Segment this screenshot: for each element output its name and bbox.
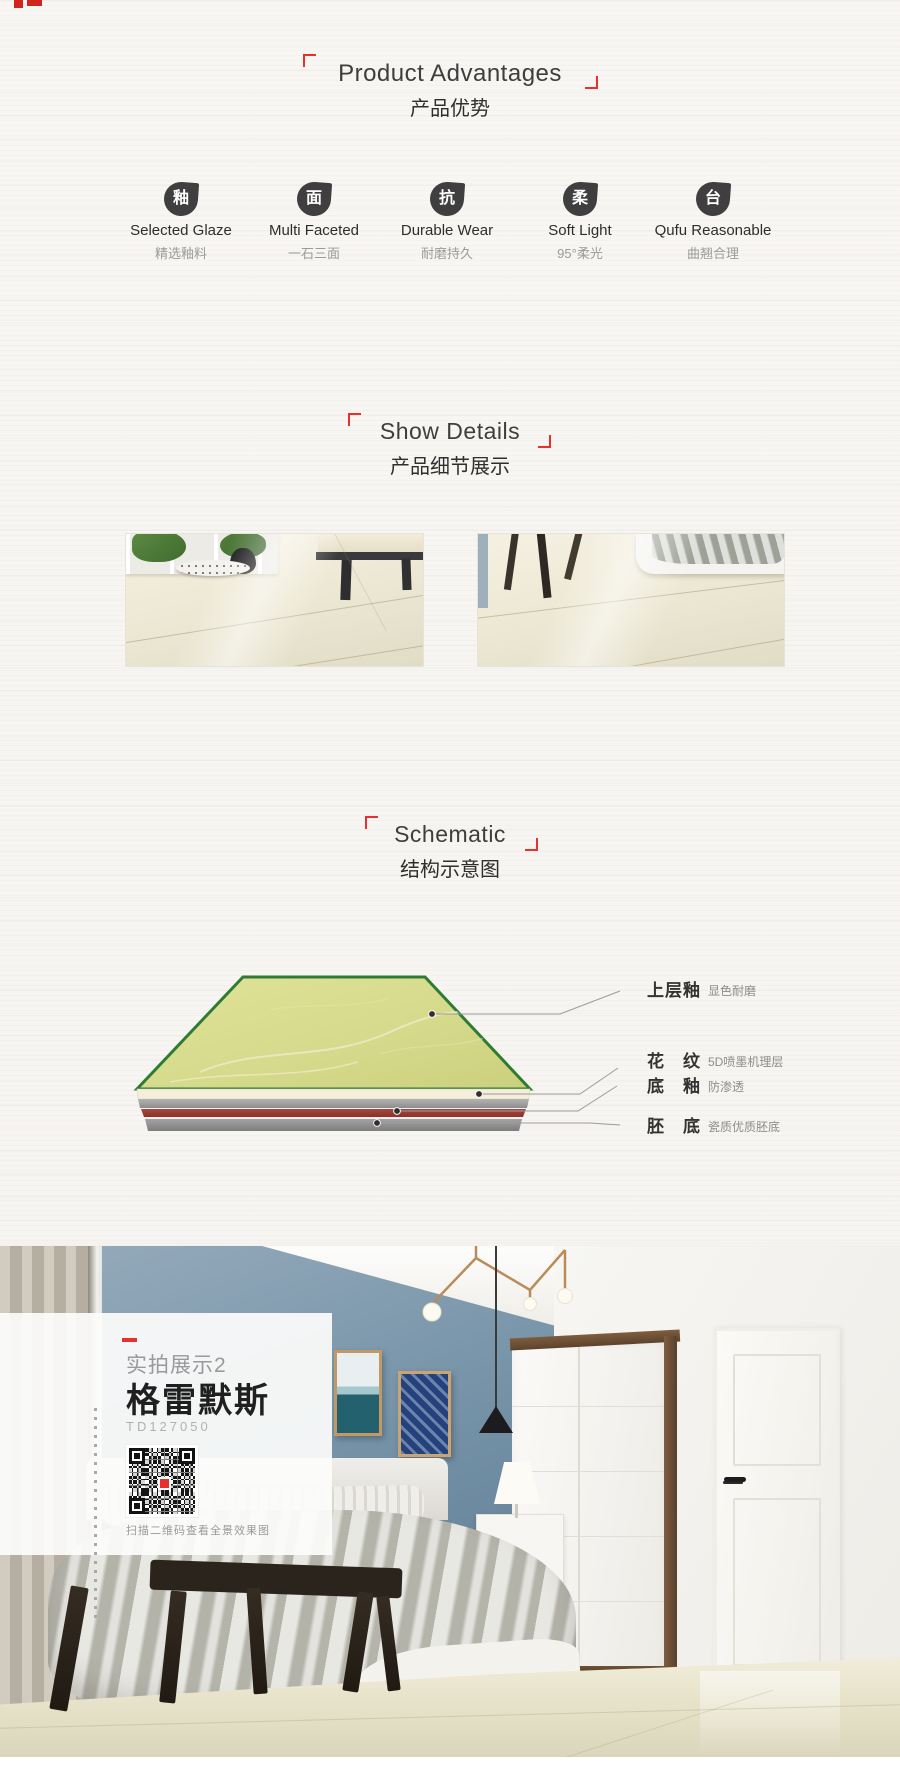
painting-abstract xyxy=(398,1371,451,1457)
gray-layer xyxy=(138,1099,529,1108)
advantage-label: Multi Faceted xyxy=(239,222,389,239)
layer-name: 上层釉 xyxy=(647,980,701,1000)
logo-fragment xyxy=(14,0,23,8)
advantage-label: Soft Light xyxy=(505,222,655,239)
layer-name: 花 纹 xyxy=(647,1051,701,1071)
flat-drop-icon: 台 xyxy=(695,181,731,217)
tile-structure-diagram: 上层釉 显色耐磨 花 纹 5D喷墨机理层 底 釉 防渗透 胚 底 瓷质优质胚底 xyxy=(90,950,800,1160)
advantage-label: Selected Glaze xyxy=(106,222,256,239)
body-edge-layer xyxy=(137,1089,530,1099)
section-title-advantages: Product Advantages xyxy=(0,60,900,88)
product-name: 格雷默斯 xyxy=(126,1373,270,1422)
door-handle xyxy=(724,1477,746,1482)
tile-top-surface xyxy=(137,977,530,1089)
detail-photo-floor-shelf xyxy=(125,533,424,667)
advantage-label: Qufu Reasonable xyxy=(638,222,788,239)
section-subtitle-advantages: 产品优势 xyxy=(0,92,900,121)
floor-reflection xyxy=(700,1671,840,1757)
layer-desc: 显色耐磨 xyxy=(708,984,756,998)
advantage-item: 柔 Soft Light 95°柔光 xyxy=(505,182,655,262)
pendant-cord xyxy=(495,1246,497,1408)
layer-name: 胚 底 xyxy=(647,1116,701,1136)
painting-iceberg xyxy=(334,1350,382,1436)
layer-name: 底 釉 xyxy=(647,1076,701,1096)
qr-finder-icon xyxy=(179,1448,195,1464)
footer-strip xyxy=(0,1757,900,1791)
chandelier xyxy=(380,1246,640,1356)
glaze-drop-icon: 釉 xyxy=(163,181,199,217)
advantage-item: 台 Qufu Reasonable 曲翘合理 xyxy=(638,182,788,262)
advantage-item: 面 Multi Faceted 一石三面 xyxy=(239,182,389,262)
soft-drop-icon: 柔 xyxy=(562,181,598,217)
floor-sheen xyxy=(478,534,784,666)
advantage-sublabel: 精选釉料 xyxy=(106,243,256,262)
layer-desc: 防渗透 xyxy=(708,1079,744,1094)
logo-fragment xyxy=(27,0,42,6)
qr-finder-icon xyxy=(129,1448,145,1464)
product-model: TD127050 xyxy=(126,1419,211,1434)
wardrobe-side-trim xyxy=(664,1336,677,1674)
section-title-details: Show Details xyxy=(0,418,900,445)
layer-desc: 瓷质优质胚底 xyxy=(708,1119,780,1134)
advantage-label: Durable Wear xyxy=(372,222,522,239)
base-layer xyxy=(145,1119,522,1131)
bedroom-showcase-photo: 实拍展示2 格雷默斯 TD127050 扫描二维码查看全景效果图 xyxy=(0,1246,900,1757)
wardrobe-line xyxy=(512,1406,666,1407)
advantage-sublabel: 曲翘合理 xyxy=(638,243,788,262)
qr-caption: 扫描二维码查看全景效果图 xyxy=(126,1522,270,1538)
wardrobe-divider xyxy=(578,1346,580,1670)
qr-finder-icon xyxy=(129,1498,145,1514)
detail-photo-floor-bed xyxy=(477,533,785,667)
product-detail-page: Product Advantages 产品优势 釉 Selected Glaze… xyxy=(0,0,900,1791)
facet-drop-icon: 面 xyxy=(296,181,332,217)
red-dash-icon xyxy=(122,1338,137,1342)
advantage-item: 釉 Selected Glaze 精选釉料 xyxy=(106,182,256,262)
advantage-sublabel: 95°柔光 xyxy=(505,243,655,262)
wardrobe-line xyxy=(512,1471,666,1472)
qr-logo-icon xyxy=(158,1477,171,1490)
door-panel xyxy=(733,1354,821,1466)
section-subtitle-schematic: 结构示意图 xyxy=(0,853,900,882)
red-bottom-glaze-layer xyxy=(141,1109,526,1117)
advantage-item: 抗 Durable Wear 耐磨持久 xyxy=(372,182,522,262)
section-title-schematic: Schematic xyxy=(0,821,900,848)
lamp-stand xyxy=(515,1502,518,1518)
door-panel xyxy=(733,1498,821,1666)
section-subtitle-details: 产品细节展示 xyxy=(0,450,900,479)
advantage-sublabel: 一石三面 xyxy=(239,243,389,262)
layer-desc: 5D喷墨机理层 xyxy=(708,1055,783,1069)
product-info-overlay: 实拍展示2 格雷默斯 TD127050 扫描二维码查看全景效果图 xyxy=(0,1313,332,1555)
wear-drop-icon: 抗 xyxy=(429,181,465,217)
advantage-sublabel: 耐磨持久 xyxy=(372,243,522,262)
floor-sheen xyxy=(126,534,423,666)
qr-code xyxy=(126,1445,198,1517)
decorative-dotted-rail xyxy=(94,1408,97,1620)
